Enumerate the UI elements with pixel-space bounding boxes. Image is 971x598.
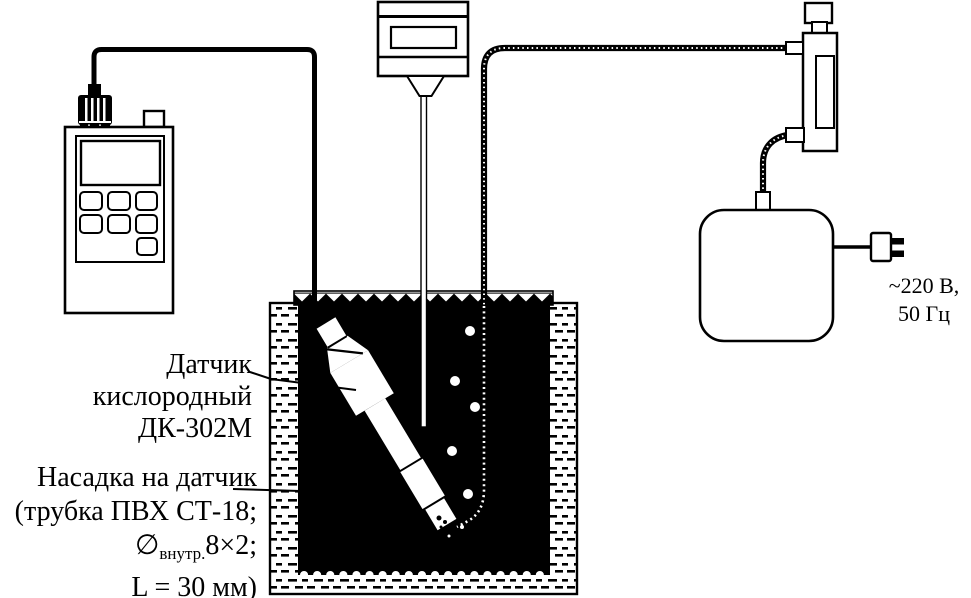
nozzle-label-line4: L = 30 мм) [15, 571, 257, 598]
oxygen-meter [65, 84, 173, 313]
diameter-subscript: внутр. [159, 544, 205, 563]
meter-keypad-button [80, 192, 102, 210]
temperature-probe [421, 96, 427, 427]
meter-keypad-button [80, 215, 102, 233]
diameter-value: 8×2; [205, 530, 257, 561]
meter-top-button [144, 111, 164, 127]
power-label-line2: 50 Гц [872, 300, 971, 328]
pump-body [700, 210, 833, 341]
power-plug [871, 233, 904, 261]
power-supply-label: ~220 В, 50 Гц [872, 272, 971, 328]
sensor-label: Датчик кислородный ДК-302М [93, 349, 252, 445]
vessel-bottom-layer [298, 577, 550, 592]
sensor-label-line2: кислородный [93, 381, 252, 413]
thermometer-neck [407, 76, 444, 96]
regulator-outlet-port [786, 42, 803, 54]
nozzle-label: Насадка на датчик (трубка ПВХ СТ-18; ∅вн… [15, 461, 257, 598]
meter-keypad-button [136, 192, 157, 210]
power-label-line1: ~220 В, [872, 272, 971, 300]
flow-regulator [786, 3, 837, 151]
pump-tube [763, 135, 788, 196]
meter-keypad-button [108, 215, 130, 233]
pump-inlet-fitting [756, 192, 770, 211]
diagram-oxygen-measurement-setup: Датчик кислородный ДК-302М Насадка на да… [0, 0, 971, 598]
sensor-label-line3: ДК-302М [93, 413, 252, 445]
regulator-inlet-port [786, 128, 804, 142]
regulator-knob [805, 3, 832, 23]
diameter-symbol: ∅ [135, 530, 159, 561]
nozzle-label-diameter: ∅внутр.8×2; [15, 529, 257, 571]
meter-keypad-button [137, 238, 157, 255]
meter-keypad-button [108, 192, 130, 210]
nozzle-label-line2: (трубка ПВХ СТ-18; [15, 495, 257, 529]
nozzle-label-line1: Насадка на датчик [15, 461, 257, 495]
regulator-window [816, 56, 834, 128]
sensor-label-line1: Датчик [93, 349, 252, 381]
meter-keypad-button [136, 215, 157, 233]
meter-display [81, 141, 160, 185]
thermometer-display [391, 27, 456, 48]
